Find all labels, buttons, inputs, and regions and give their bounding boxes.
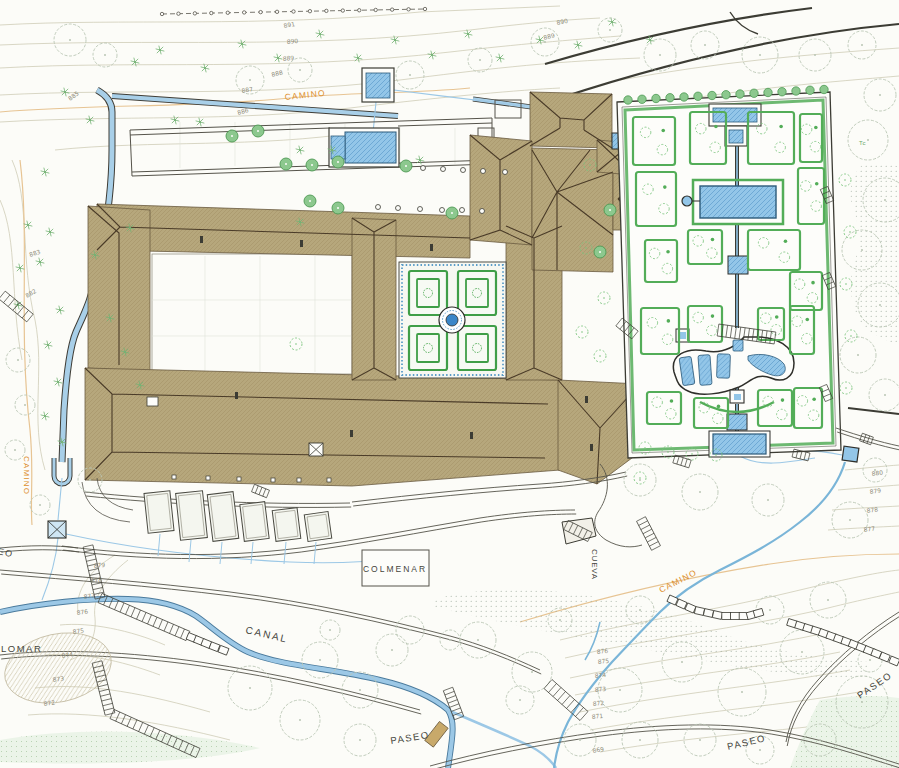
label-canal-label: CANAL bbox=[245, 624, 290, 644]
elevation-label: 885 bbox=[67, 89, 81, 101]
outline-tree bbox=[840, 382, 852, 394]
canopy-tree bbox=[280, 700, 320, 740]
hedge-row-shrub bbox=[680, 93, 688, 101]
elevation-label: 872 bbox=[592, 699, 604, 707]
elevation-label: 891 bbox=[283, 20, 296, 29]
canopy-tree bbox=[864, 79, 896, 111]
outline-tree bbox=[840, 278, 852, 290]
canopy-tree bbox=[54, 24, 86, 56]
label-camino-left: CAMINO bbox=[22, 456, 31, 495]
outline-tree bbox=[839, 174, 851, 186]
hedge-row-shrub bbox=[652, 94, 660, 102]
axis-basin bbox=[727, 414, 747, 430]
meadow-southwest bbox=[0, 732, 260, 764]
shrub-sketch bbox=[54, 378, 63, 387]
elevation-label: 882 bbox=[24, 287, 38, 299]
elevation-label: 871 bbox=[591, 712, 603, 720]
hedge-row-shrub bbox=[792, 87, 800, 95]
hedge-row-shrub bbox=[694, 92, 702, 100]
canopy-tree bbox=[848, 120, 888, 160]
fence-post bbox=[242, 11, 245, 14]
elevation-label: 874 bbox=[594, 671, 606, 679]
garden-bed bbox=[144, 491, 174, 533]
shrub-sketch bbox=[201, 64, 210, 73]
label-camino-top: CAMINO bbox=[284, 88, 326, 102]
elevation-label: 889 bbox=[543, 31, 556, 41]
elevation-label: 873 bbox=[594, 685, 606, 693]
fence-post bbox=[358, 9, 361, 12]
fence-post bbox=[259, 10, 262, 13]
label-camino-southeast: CAMINO bbox=[657, 567, 698, 595]
hedge-row-shrub bbox=[638, 95, 646, 103]
shrub-sketch bbox=[238, 40, 247, 49]
parterre-garden bbox=[399, 262, 506, 378]
hedge-row-shrub bbox=[624, 96, 632, 104]
hedge-row-shrub bbox=[764, 88, 772, 96]
palomar-mound bbox=[0, 624, 118, 713]
shrub-sketch bbox=[24, 221, 33, 230]
canopy-tree bbox=[93, 43, 117, 67]
fence-post bbox=[177, 12, 180, 15]
shrub-sketch bbox=[16, 264, 25, 273]
canopy-tree bbox=[848, 31, 876, 59]
canopy-tree bbox=[6, 348, 30, 372]
garden-north-basin bbox=[713, 108, 757, 122]
label-tree-note: Tc bbox=[859, 140, 866, 146]
elevation-label: 888 bbox=[271, 68, 284, 78]
fence-post bbox=[341, 9, 344, 12]
elevation-label: 879 bbox=[93, 561, 105, 569]
canopy-tree bbox=[506, 686, 534, 714]
garden-tree bbox=[400, 160, 412, 172]
fence-post bbox=[374, 8, 377, 11]
shrub-sketch bbox=[41, 168, 50, 177]
fence-post bbox=[226, 11, 229, 14]
shrub-sketch bbox=[496, 54, 505, 63]
elevation-label: 880 bbox=[871, 468, 883, 477]
cloister-courtyard bbox=[152, 254, 352, 374]
fence-post bbox=[390, 8, 393, 11]
fence-post bbox=[325, 9, 328, 12]
fence-post bbox=[407, 8, 410, 11]
garden-bed bbox=[207, 492, 239, 542]
elevation-label: 875 bbox=[72, 626, 84, 635]
garden-bed bbox=[240, 502, 269, 542]
canopy-tree bbox=[396, 61, 424, 89]
hedge-row-shrub bbox=[806, 86, 814, 94]
canopy-tree bbox=[799, 39, 831, 71]
outline-tree bbox=[845, 330, 857, 342]
colmenar-meadow bbox=[432, 590, 870, 680]
garden-upper-pool bbox=[729, 130, 743, 143]
hedge-row-shrub bbox=[736, 90, 744, 98]
hillside-stipple bbox=[850, 162, 899, 345]
axis-fountain bbox=[734, 394, 741, 400]
shrub-sketch bbox=[41, 412, 50, 421]
fence-post bbox=[292, 10, 295, 13]
canopy-tree bbox=[742, 37, 778, 73]
south-wing-roof bbox=[85, 368, 560, 486]
water-arqueta-east bbox=[842, 446, 859, 462]
elevation-label: 878 bbox=[866, 505, 878, 514]
church-west-roof bbox=[470, 135, 532, 245]
outline-tree bbox=[594, 350, 606, 362]
elevation-label: 883 bbox=[28, 248, 41, 258]
shrub-sketch bbox=[296, 146, 305, 155]
shrub-sketch bbox=[196, 118, 205, 127]
site-plan-drawing: CAMINOCAMINOCAMINOCANALCOLMENARPALOMARCU… bbox=[0, 0, 899, 768]
fence-post bbox=[160, 12, 163, 15]
long-pool bbox=[700, 186, 776, 218]
garden-tree bbox=[332, 202, 344, 214]
shrub-sketch bbox=[86, 116, 95, 125]
shrub-sketch bbox=[274, 54, 283, 63]
canopy-tree bbox=[468, 48, 492, 72]
fence-post bbox=[275, 10, 278, 13]
garden-bed bbox=[176, 491, 208, 541]
north-wing-roof bbox=[97, 204, 470, 258]
road-line bbox=[0, 546, 78, 548]
fountain-basin bbox=[446, 314, 458, 326]
irrigation-drip bbox=[284, 542, 286, 564]
canopy-tree bbox=[810, 582, 846, 618]
garden-tree bbox=[446, 207, 458, 219]
canopy-tree bbox=[832, 502, 868, 538]
canopy-tree bbox=[564, 724, 596, 756]
shrub-sketch bbox=[156, 46, 165, 55]
elevation-label: 869 bbox=[592, 745, 605, 754]
garden-tree bbox=[252, 125, 264, 137]
canopy-tree bbox=[718, 668, 766, 716]
elevation-label: 872 bbox=[43, 698, 55, 707]
canopy-tree bbox=[682, 474, 718, 510]
hedge-row-shrub bbox=[750, 89, 758, 97]
shrub-sketch bbox=[171, 116, 180, 125]
stepped-ramp bbox=[673, 455, 691, 468]
stepped-ramp bbox=[252, 484, 270, 497]
canopy-tree bbox=[288, 58, 312, 82]
elevation-label: 875 bbox=[597, 657, 609, 665]
round-fountain bbox=[682, 196, 692, 206]
site-plan-document: CAMINOCAMINOCAMINOCANALCOLMENARPALOMARCU… bbox=[0, 0, 899, 768]
outline-tree bbox=[598, 292, 610, 304]
elevation-label: 887 bbox=[241, 85, 254, 94]
garden-tree bbox=[226, 130, 238, 142]
elevation-label: 890 bbox=[556, 17, 569, 26]
hedge-row-shrub bbox=[820, 85, 828, 93]
label-cueva-label: CUEVA bbox=[590, 549, 599, 580]
shrub-sketch bbox=[46, 228, 55, 237]
irrigation-drip bbox=[158, 534, 160, 556]
irrigation-drip bbox=[314, 542, 316, 564]
terraced-garden-beds bbox=[144, 491, 332, 542]
elevation-label: 876 bbox=[596, 647, 608, 655]
label-palomar-label: PALOMAR bbox=[0, 643, 42, 654]
fence-post bbox=[308, 9, 311, 12]
shrub-sketch bbox=[416, 156, 425, 165]
fence-post bbox=[193, 12, 196, 15]
label-paseo-south: PASEO bbox=[726, 732, 767, 752]
shrub-sketch bbox=[36, 258, 45, 267]
garden-tree bbox=[280, 158, 292, 170]
block-wall bbox=[667, 595, 764, 620]
canopy-tree bbox=[531, 28, 559, 56]
fence-post bbox=[210, 11, 213, 14]
fence-post bbox=[423, 7, 426, 10]
hedge-row-shrub bbox=[778, 88, 786, 96]
canopy-tree bbox=[691, 31, 719, 59]
garden-tree bbox=[604, 204, 616, 216]
shrub-sketch bbox=[574, 41, 583, 50]
canopy-tree bbox=[320, 620, 340, 640]
elevation-label: 890 bbox=[286, 37, 298, 45]
shrub-sketch bbox=[56, 306, 65, 315]
elevation-label: 889 bbox=[282, 54, 294, 62]
garden-bed bbox=[304, 511, 332, 541]
canopy-tree bbox=[15, 395, 35, 415]
elevation-label: 877 bbox=[863, 524, 875, 533]
garden-tree bbox=[332, 156, 344, 168]
hedge-row-shrub bbox=[708, 91, 716, 99]
outline-tree bbox=[634, 472, 646, 484]
garden-mid-pool bbox=[728, 256, 748, 274]
canopy-tree bbox=[440, 630, 460, 650]
canopy-tree bbox=[30, 495, 50, 515]
garden-bed bbox=[272, 508, 301, 542]
hedge-row-shrub bbox=[722, 91, 730, 99]
garden-south-pool bbox=[713, 434, 766, 454]
canopy-tree bbox=[302, 642, 338, 678]
canal-branch bbox=[448, 710, 556, 768]
garden-tree bbox=[306, 159, 318, 171]
irrigation-drip bbox=[220, 542, 222, 564]
meadow-southeast bbox=[790, 696, 899, 768]
canopy-tree bbox=[840, 337, 876, 373]
shrub-sketch bbox=[428, 51, 437, 60]
shrub-sketch bbox=[464, 30, 473, 39]
shrub-sketch bbox=[354, 54, 363, 63]
outline-tree bbox=[576, 326, 588, 338]
label-colmenar-label: COLMENAR bbox=[363, 564, 427, 574]
elevation-label: 876 bbox=[76, 607, 88, 616]
garden-tree bbox=[304, 195, 316, 207]
fence-posts bbox=[160, 7, 426, 15]
shrub-sketch bbox=[44, 341, 53, 350]
canopy-tree bbox=[396, 616, 424, 644]
canopy-tree bbox=[344, 724, 376, 756]
canopy-tree bbox=[5, 440, 25, 460]
shrub-sketch bbox=[316, 30, 325, 39]
garden-tree bbox=[594, 246, 606, 258]
canopy-tree bbox=[624, 464, 656, 496]
canopy-tree bbox=[228, 666, 272, 710]
elevation-label: 879 bbox=[869, 486, 881, 495]
label-paseo-center: PASEO bbox=[390, 729, 431, 746]
hedge-row-shrub bbox=[666, 94, 674, 102]
canopy-tree bbox=[376, 634, 408, 666]
canopy-tree bbox=[869, 379, 899, 411]
north-pool bbox=[345, 132, 396, 163]
label-paseo-left: PASEO bbox=[0, 541, 15, 559]
canopy-tree bbox=[752, 484, 784, 516]
aljibe-basin bbox=[366, 73, 390, 98]
